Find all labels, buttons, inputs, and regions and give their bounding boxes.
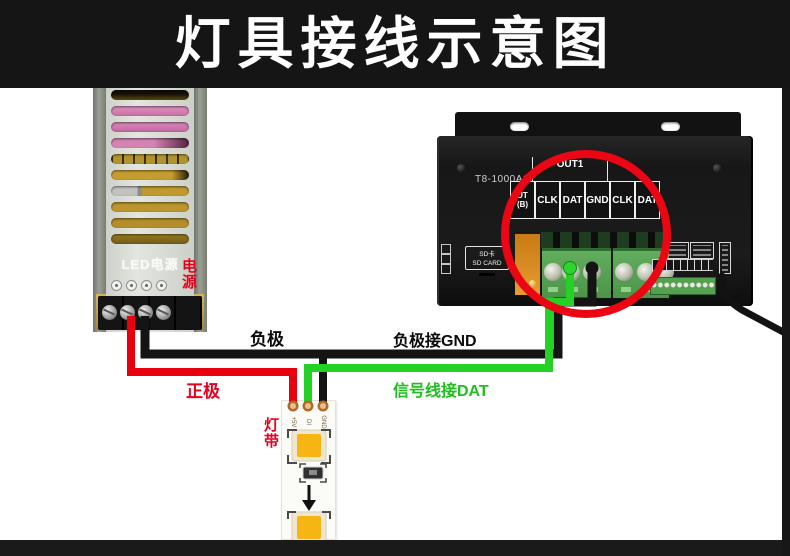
pad-label-5v: +5V	[289, 414, 297, 430]
led-die	[297, 434, 321, 457]
page-title: 灯具接线示意图	[175, 16, 616, 72]
right-bar	[782, 88, 790, 556]
signal-dat-label: 信号线接DAT	[393, 377, 489, 401]
resistor	[300, 464, 326, 482]
pad-label-di: DI	[304, 414, 312, 430]
bottom-bar	[0, 540, 790, 556]
title-banner: 灯具接线示意图	[0, 0, 790, 88]
pad-label-gnd: GND	[319, 414, 327, 430]
highlight-circle	[505, 154, 667, 314]
led-die	[297, 516, 321, 539]
led-chip	[288, 430, 330, 463]
signal-wire-end	[564, 262, 577, 275]
pad-di-center	[305, 403, 311, 409]
positive-label: 正极	[186, 377, 220, 402]
negative-wire-end	[586, 262, 599, 275]
negative-wire	[145, 264, 592, 354]
direction-arrow-icon	[302, 485, 316, 511]
arrow-head	[302, 500, 316, 511]
strip-annotation: 灯带	[263, 418, 280, 450]
negative-label: 负极	[250, 325, 284, 350]
resistor-marking	[309, 470, 317, 475]
psu-annotation: 电源	[181, 259, 198, 291]
wiring-diagram: LED电源 T8-1000AC OUT1 UT (B) CLK DAT GND	[0, 0, 790, 556]
strip-pads	[288, 401, 329, 412]
pad-gnd-center	[320, 403, 326, 409]
negative-gnd-label: 负极接GND	[393, 327, 477, 351]
power-cord	[722, 276, 787, 334]
led-chip	[288, 512, 330, 543]
pad-5v-center	[290, 403, 296, 409]
